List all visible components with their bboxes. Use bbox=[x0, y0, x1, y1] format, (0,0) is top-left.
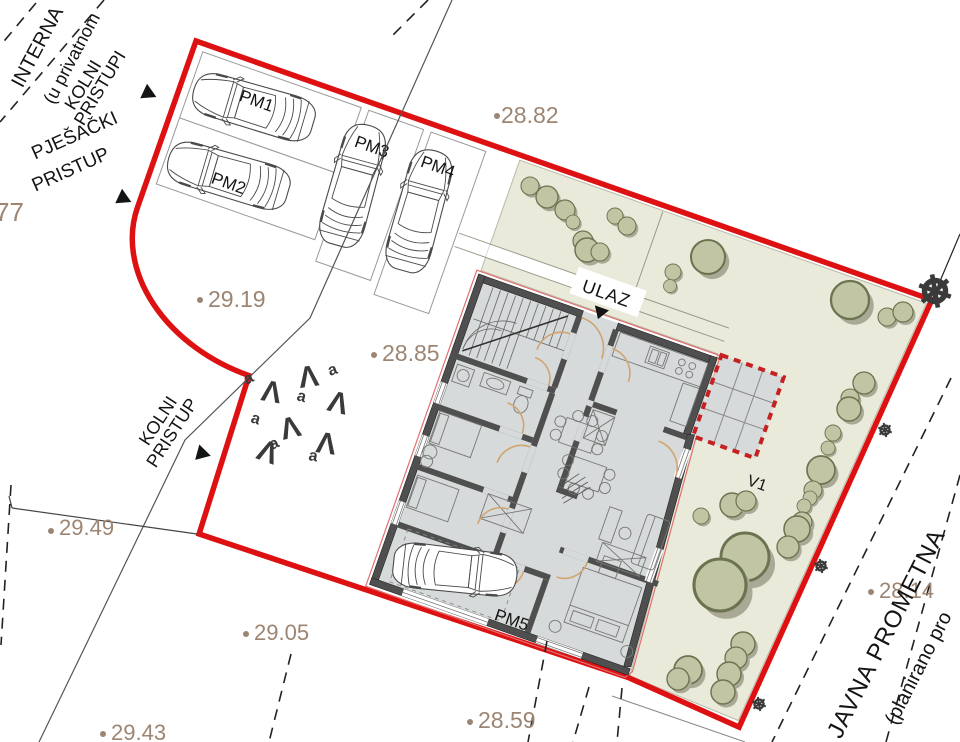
svg-text:28.59: 28.59 bbox=[478, 707, 536, 733]
svg-text:28.82: 28.82 bbox=[501, 102, 559, 128]
svg-text:29.19: 29.19 bbox=[208, 286, 266, 312]
svg-text:28.85: 28.85 bbox=[382, 340, 440, 366]
svg-text:29.43: 29.43 bbox=[111, 720, 166, 742]
svg-text:29.05: 29.05 bbox=[254, 620, 309, 645]
svg-text:29.49: 29.49 bbox=[59, 515, 114, 540]
svg-text:77: 77 bbox=[0, 197, 24, 227]
